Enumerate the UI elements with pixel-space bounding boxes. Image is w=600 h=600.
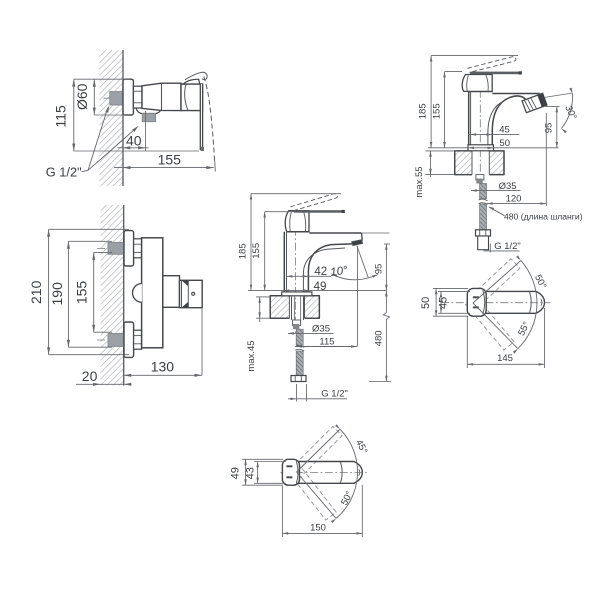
- svg-text:50: 50: [499, 138, 510, 149]
- svg-text:20: 20: [82, 368, 98, 384]
- svg-text:Ø35: Ø35: [499, 181, 517, 192]
- svg-text:49: 49: [314, 281, 327, 293]
- svg-text:95: 95: [373, 264, 384, 275]
- svg-text:50: 50: [420, 297, 432, 309]
- svg-text:G 1/2": G 1/2": [321, 388, 348, 399]
- svg-text:185: 185: [418, 103, 429, 119]
- svg-text:10°: 10°: [330, 265, 349, 279]
- svg-text:115: 115: [319, 336, 334, 347]
- svg-text:Ø35: Ø35: [312, 323, 330, 334]
- svg-text:185: 185: [237, 243, 248, 259]
- svg-text:480 (длина шланги): 480 (длина шланги): [504, 212, 583, 222]
- svg-text:G 1/2": G 1/2": [494, 241, 521, 252]
- svg-text:155: 155: [432, 103, 443, 119]
- svg-text:45: 45: [499, 125, 510, 136]
- svg-text:42: 42: [314, 266, 327, 278]
- svg-text:45: 45: [438, 297, 450, 309]
- svg-text:G 1/2": G 1/2": [46, 165, 82, 180]
- svg-text:145: 145: [497, 353, 513, 364]
- svg-text:155: 155: [158, 152, 182, 168]
- svg-text:210: 210: [28, 280, 44, 304]
- svg-text:Ø60: Ø60: [74, 83, 90, 110]
- svg-text:130: 130: [151, 358, 175, 374]
- svg-text:49: 49: [230, 467, 242, 479]
- svg-text:43: 43: [245, 467, 257, 479]
- svg-text:155: 155: [74, 281, 90, 305]
- svg-text:max.45: max.45: [246, 340, 257, 371]
- svg-text:480: 480: [374, 330, 385, 346]
- svg-text:155: 155: [251, 243, 262, 259]
- svg-text:150: 150: [310, 522, 326, 533]
- svg-text:95: 95: [543, 123, 554, 134]
- svg-text:190: 190: [49, 282, 65, 306]
- svg-text:max.55: max.55: [414, 166, 425, 197]
- svg-text:120: 120: [506, 194, 522, 205]
- svg-text:115: 115: [52, 105, 68, 128]
